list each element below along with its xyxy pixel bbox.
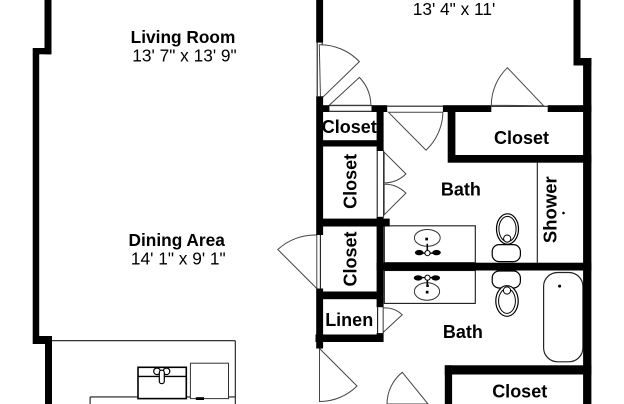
svg-text:Closet: Closet: [322, 117, 377, 137]
svg-text:Shower: Shower: [540, 176, 561, 243]
svg-text:Closet: Closet: [341, 231, 361, 286]
svg-text:Closet: Closet: [492, 382, 547, 402]
svg-text:13' 7" x 13' 9": 13' 7" x 13' 9": [132, 46, 236, 66]
svg-text:14' 1" x 9' 1": 14' 1" x 9' 1": [131, 249, 226, 269]
svg-text:Dining Area: Dining Area: [129, 230, 226, 250]
svg-text:Closet: Closet: [494, 128, 549, 148]
svg-text:Bath: Bath: [443, 322, 483, 342]
svg-text:Bath: Bath: [441, 180, 481, 200]
svg-text:Linen: Linen: [325, 310, 373, 330]
svg-text:Closet: Closet: [340, 154, 360, 209]
svg-text:Living Room: Living Room: [131, 27, 236, 47]
svg-text:13' 4" x 11': 13' 4" x 11': [413, 0, 496, 19]
